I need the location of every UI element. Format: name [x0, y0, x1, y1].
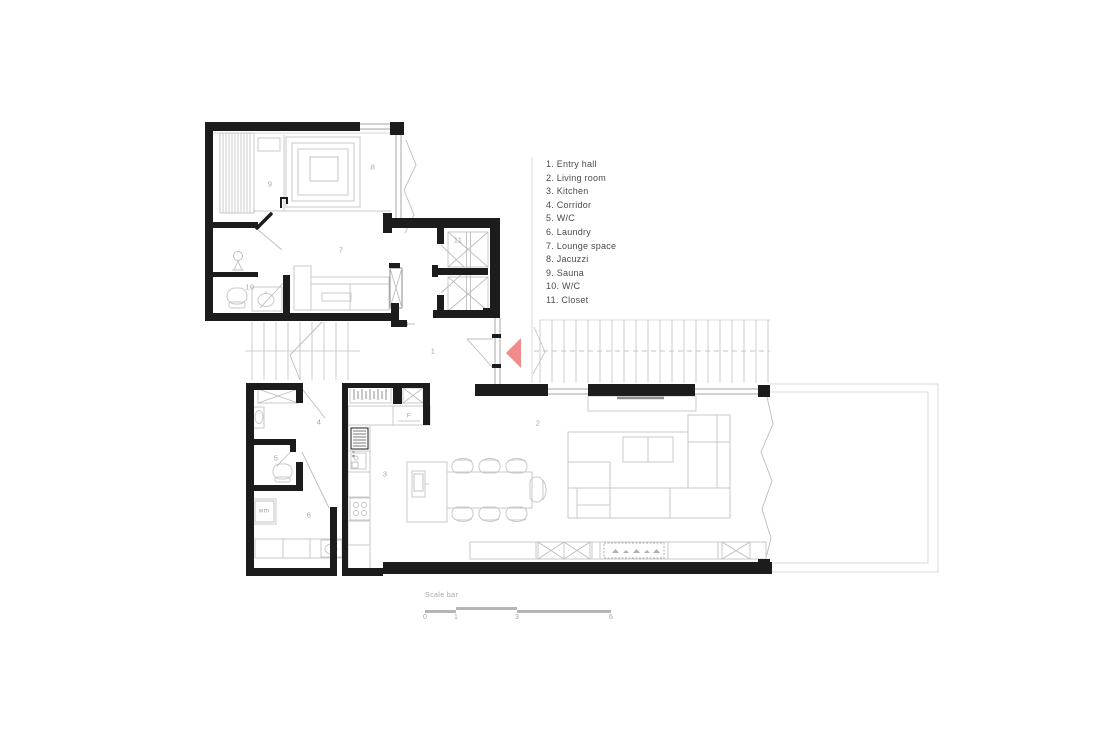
- room-label-jacuzzi: 8: [371, 163, 376, 172]
- coat-hanger-rack: [350, 387, 391, 403]
- fireplace: [604, 543, 664, 558]
- scale-bar-segment: [456, 607, 517, 610]
- scale-bar-segment: [517, 610, 611, 613]
- fridge-counter: [348, 406, 430, 425]
- floor-plan-page: 1 2 3 4 5 6 7 8 9 10 11 F wm 1. Entry ha…: [0, 0, 1100, 735]
- wardrobe-x-closet-bottom: [448, 277, 488, 311]
- sauna-heater: [258, 138, 280, 151]
- floor-plan-drawing: [0, 0, 1100, 735]
- room-label-corridor: 4: [317, 418, 322, 427]
- kitchen-island: [407, 462, 447, 522]
- cabinet-x-media-right: [722, 542, 750, 559]
- legend-item: 4. Corridor: [546, 199, 616, 213]
- washbasin-corridor: [253, 407, 264, 428]
- entry-arrow: [506, 338, 521, 368]
- shower-symbol: [232, 252, 244, 271]
- door-swing-entry: [467, 339, 493, 368]
- legend-item: 11. Closet: [546, 294, 616, 308]
- toilet-upper-wc: [227, 288, 247, 308]
- room-label-closet: 11: [454, 236, 463, 245]
- scale-tick: 1: [454, 614, 458, 621]
- interior-staircase: [245, 322, 360, 380]
- room-label-living-room: 2: [536, 419, 541, 428]
- cabinet-x-media-left: [538, 542, 590, 559]
- door-swing-corridor: [303, 390, 325, 418]
- room-label-lounge-space: 7: [339, 246, 344, 255]
- jacuzzi-tub: [286, 137, 360, 207]
- washing-machine-label: wm: [259, 508, 270, 515]
- fridge-label: F: [407, 413, 411, 420]
- room-label-kitchen: 3: [383, 470, 388, 479]
- door-swing-sauna: [257, 229, 282, 250]
- room-label-laundry: 6: [307, 511, 312, 520]
- door-swing-laundry: [302, 452, 329, 508]
- legend-item: 7. Lounge space: [546, 240, 616, 254]
- legend-item: 8. Jacuzzi: [546, 253, 616, 267]
- scale-tick: 0: [423, 614, 427, 621]
- washbasin-upper-wc: [252, 287, 282, 311]
- room-label-wc-upper: 10: [245, 283, 254, 292]
- sofa-lounge: [294, 266, 389, 310]
- legend-item: 3. Kitchen: [546, 185, 616, 199]
- scale-bar-label: Scale bar: [425, 592, 458, 599]
- legend-item: 1. Entry hall: [546, 158, 616, 172]
- deck-outline: [761, 384, 938, 572]
- scale-tick: 6: [609, 614, 613, 621]
- wardrobe-x-entry: [403, 388, 423, 403]
- toilet-lower-wc: [273, 464, 292, 482]
- scale-tick: 3: [515, 614, 519, 621]
- scale-bar-segment: [425, 610, 456, 613]
- wardrobe-x-corridor: [258, 389, 298, 403]
- exterior-staircase: [533, 320, 770, 383]
- cabinet-x-lounge: [390, 268, 402, 308]
- room-label-sauna: 9: [268, 180, 273, 189]
- legend-item: 10. W/C: [546, 280, 616, 294]
- hob: [350, 498, 370, 520]
- legend-item: 5. W/C: [546, 212, 616, 226]
- sofa-living: [568, 415, 730, 518]
- dining-table: [447, 472, 532, 508]
- legend-item: 2. Living room: [546, 172, 616, 186]
- legend-item: 9. Sauna: [546, 267, 616, 281]
- legend-item: 6. Laundry: [546, 226, 616, 240]
- room-label-entry-hall: 1: [431, 347, 436, 356]
- room-label-wc: 5: [274, 454, 279, 463]
- room-legend: 1. Entry hall 2. Living room 3. Kitchen …: [546, 158, 616, 308]
